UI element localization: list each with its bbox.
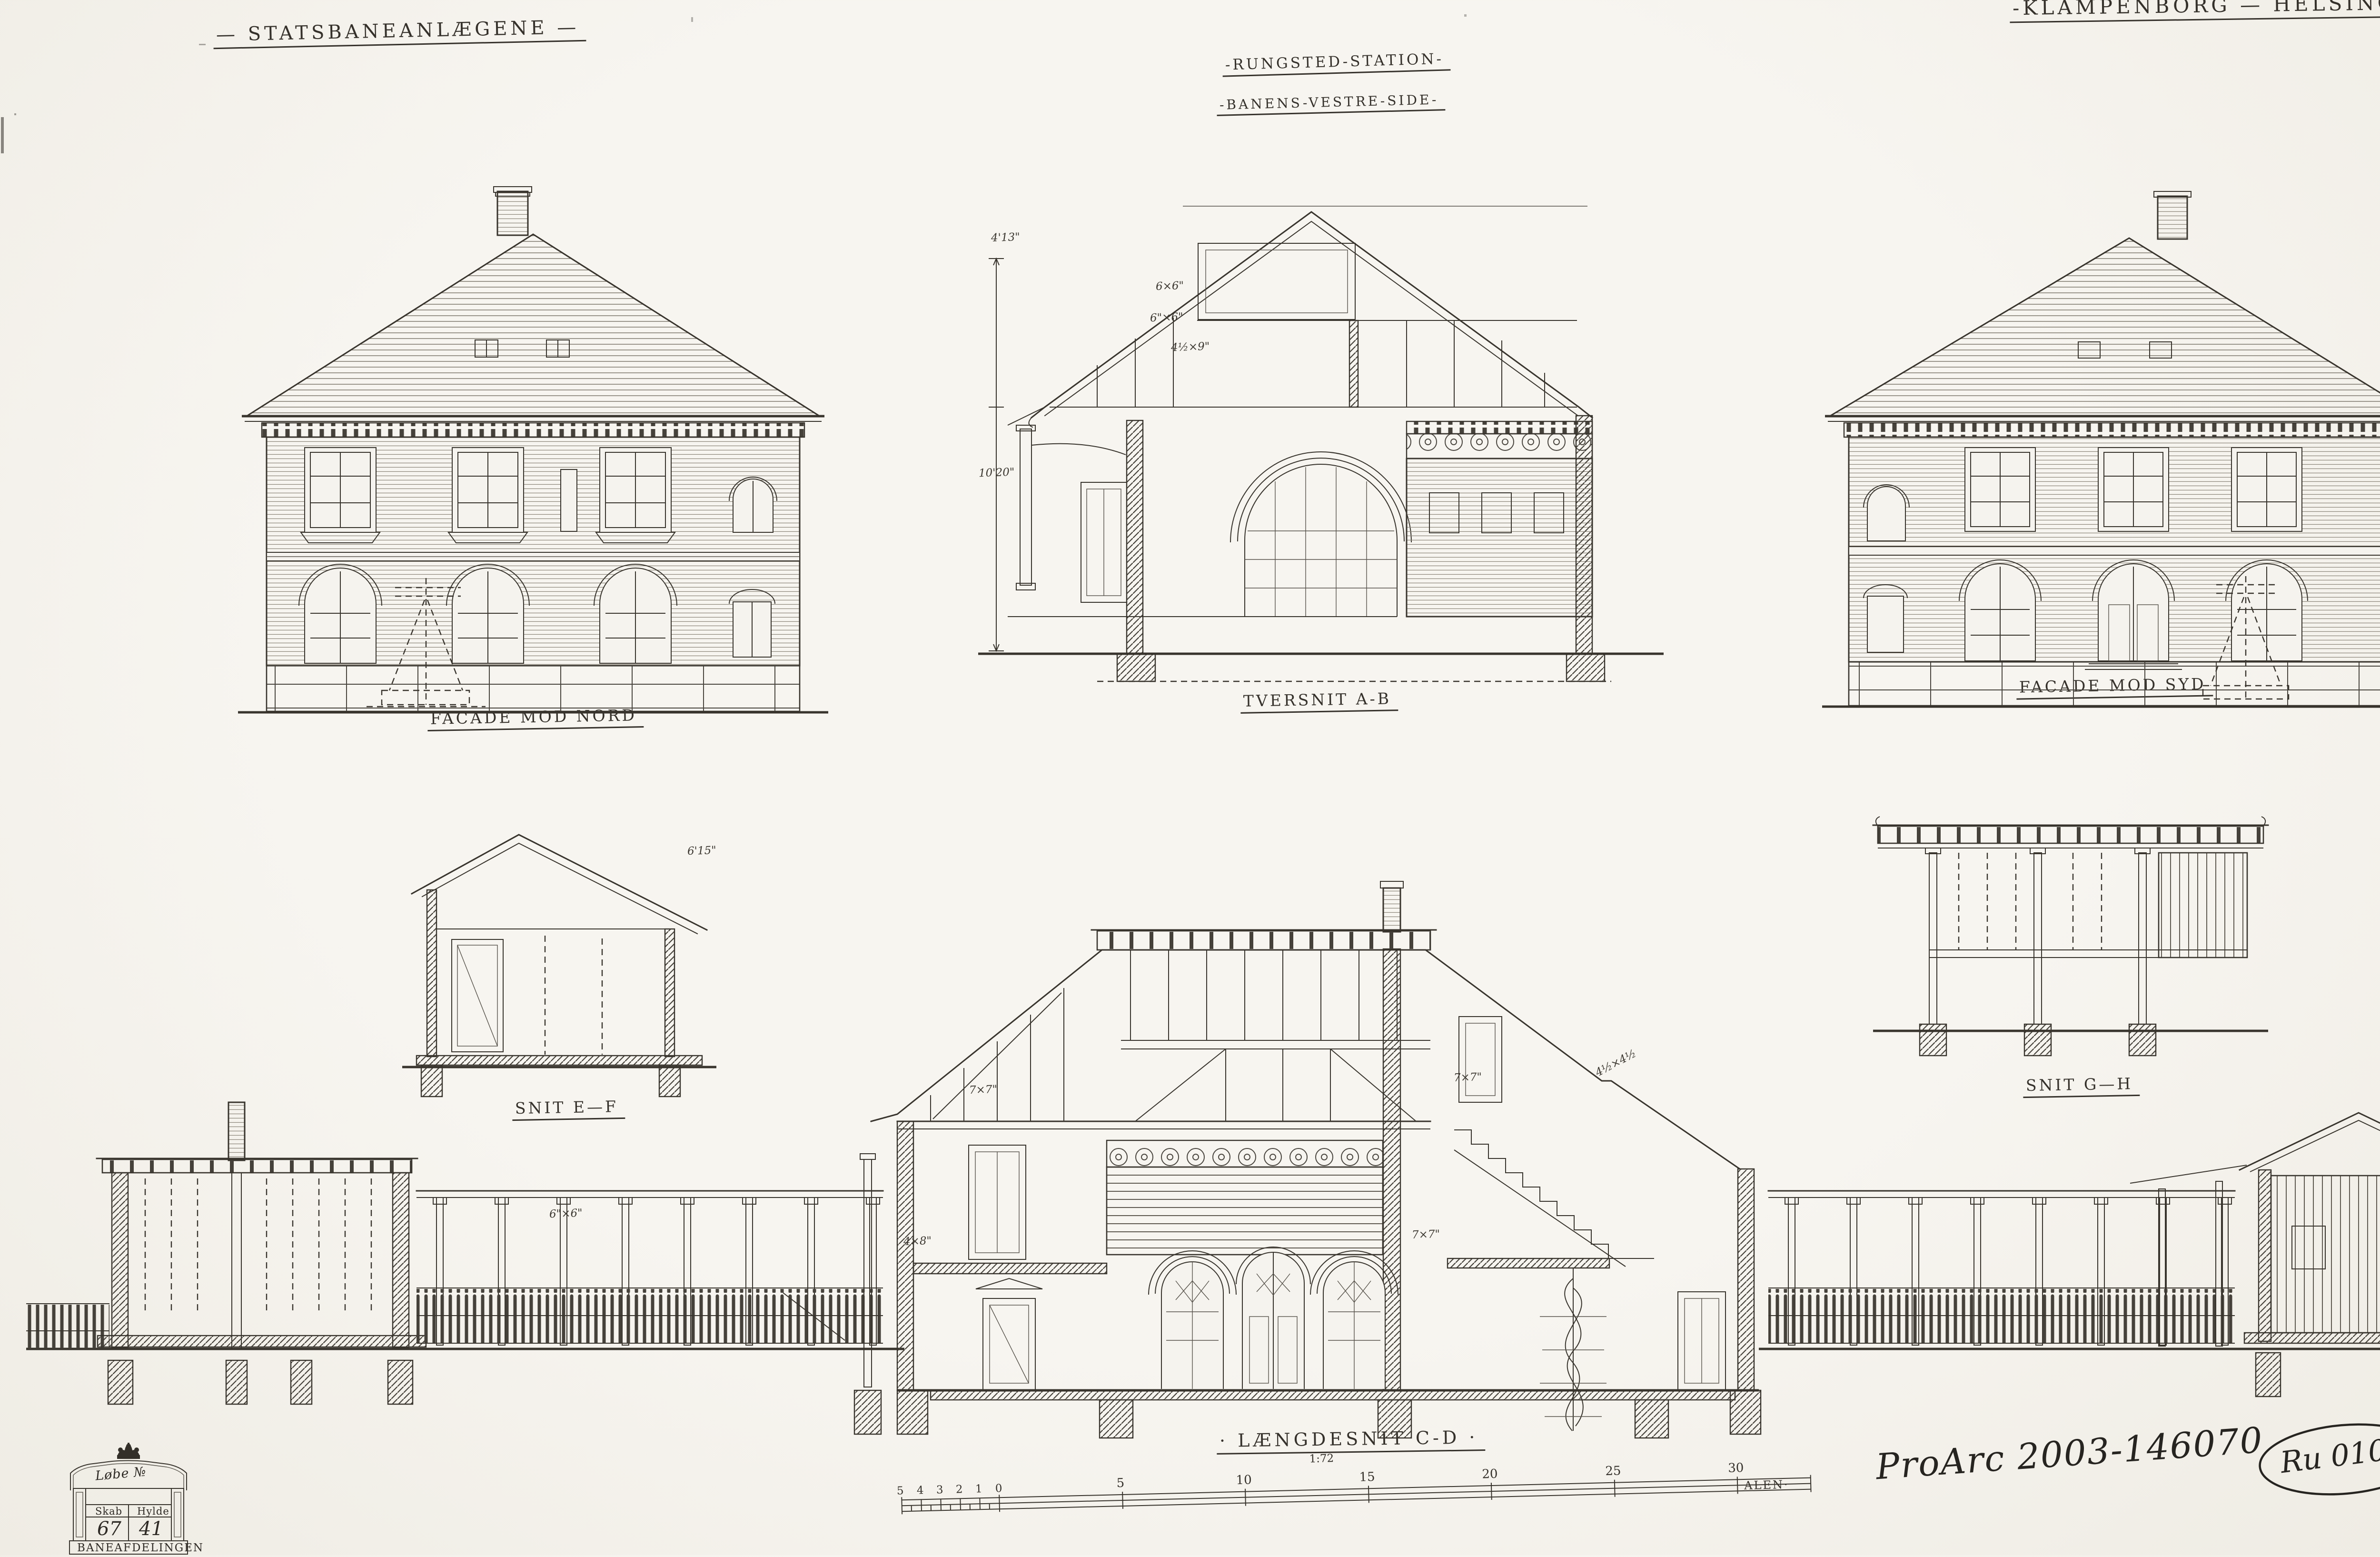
svg-text:20: 20 <box>1482 1467 1498 1482</box>
dim-label: 4½×9" <box>1171 340 1210 354</box>
fence-far-left <box>26 1304 109 1348</box>
svg-text:10: 10 <box>1236 1473 1252 1487</box>
laengdesnit-cd-drawing <box>26 836 2380 1445</box>
stair-upper-flight <box>1454 1130 1654 1267</box>
attic-structure <box>1050 243 1577 407</box>
sheet-title-railline: -KLAMPENBORG — HELSINGØR <box>2010 0 2380 23</box>
dentil-cornice <box>1844 423 2380 437</box>
hall-arched-window <box>1230 452 1411 617</box>
scan-artifact <box>199 44 206 45</box>
stamp-col2-label: Hylde <box>137 1506 169 1517</box>
scale-ratio-label: 1:72 <box>1309 1452 1334 1465</box>
crown-icon <box>117 1443 140 1459</box>
foundation <box>1849 662 2380 706</box>
svg-text:30: 30 <box>1728 1461 1744 1476</box>
sheet-title-project: — STATSBANEANLÆGENE — <box>213 16 586 49</box>
platform-fence-left <box>416 1191 883 1345</box>
dentil-cornice <box>262 423 804 437</box>
stamp-col1-value: 67 <box>97 1518 121 1540</box>
dim-label: 7×7" <box>969 1083 998 1097</box>
tversnit-ab-drawing <box>978 198 1664 712</box>
chimney <box>497 191 528 235</box>
dim-label: 7×7" <box>1454 1071 1482 1084</box>
dim-label: 6×6" <box>1156 279 1184 293</box>
scale-bar: 1:72 5 4 3 2 1 0 5 10 15 20 25 30 ALE <box>888 1455 1840 1545</box>
right-outbuilding-section <box>2130 1113 2380 1397</box>
station-section <box>854 881 1761 1438</box>
stamp-footer-label: BANEAFDELINGEN <box>77 1542 204 1554</box>
stamp-col1-label: Skab <box>95 1506 122 1517</box>
roof <box>247 234 820 416</box>
sheet-title-side: -BANENS-VESTRE-SIDE- <box>1217 91 1446 116</box>
spiral-stair <box>1540 1268 1606 1431</box>
dim-label: 6"×6" <box>1150 311 1184 324</box>
foundation <box>267 666 800 711</box>
svg-text:15: 15 <box>1359 1470 1375 1485</box>
right-wall-face <box>1407 421 1592 617</box>
svg-text:1: 1 <box>975 1483 982 1495</box>
dim-label: 10'20" <box>979 466 1015 480</box>
dim-label: 4×8" <box>903 1235 932 1248</box>
scan-artifact <box>14 113 16 115</box>
archive-stamp: Løbe № Skab Hylde 67 41 BANEAFDELINGEN <box>67 1443 190 1555</box>
dimension-line <box>989 259 1004 651</box>
drawing-sheet: { "titles": { "project": "— STATSBANEANL… <box>0 0 2380 1555</box>
scan-artifact <box>1 117 4 153</box>
dim-label: 7×7" <box>1412 1228 1440 1241</box>
svg-text:5: 5 <box>897 1485 904 1497</box>
scale-unit-label: ALEN· <box>1744 1478 1789 1492</box>
svg-text:25: 25 <box>1605 1464 1621 1478</box>
svg-text:2: 2 <box>956 1483 963 1496</box>
left-outbuilding-section <box>97 1102 426 1404</box>
svg-text:0: 0 <box>995 1482 1002 1495</box>
chimney <box>2158 196 2187 239</box>
dim-label: 6"×6" <box>549 1207 583 1220</box>
entrance-door <box>1081 482 1127 602</box>
svg-text:4: 4 <box>917 1484 924 1497</box>
dim-label: 4'13" <box>991 231 1021 244</box>
scan-artifact <box>1464 14 1467 17</box>
facade-mod-nord-drawing <box>238 185 828 728</box>
svg-text:5: 5 <box>1116 1476 1124 1490</box>
sheet-title-station: -RUNGSTED-STATION- <box>1222 50 1450 77</box>
scan-artifact <box>691 17 693 22</box>
cut-wall-left <box>1127 420 1143 654</box>
cut-wall-right <box>1576 416 1592 654</box>
facade-mod-syd-drawing <box>1822 190 2380 724</box>
roof <box>1830 238 2380 416</box>
svg-text:3: 3 <box>936 1484 943 1496</box>
dim-label: 6'15" <box>687 844 717 858</box>
stamp-col2-value: 41 <box>139 1518 163 1540</box>
